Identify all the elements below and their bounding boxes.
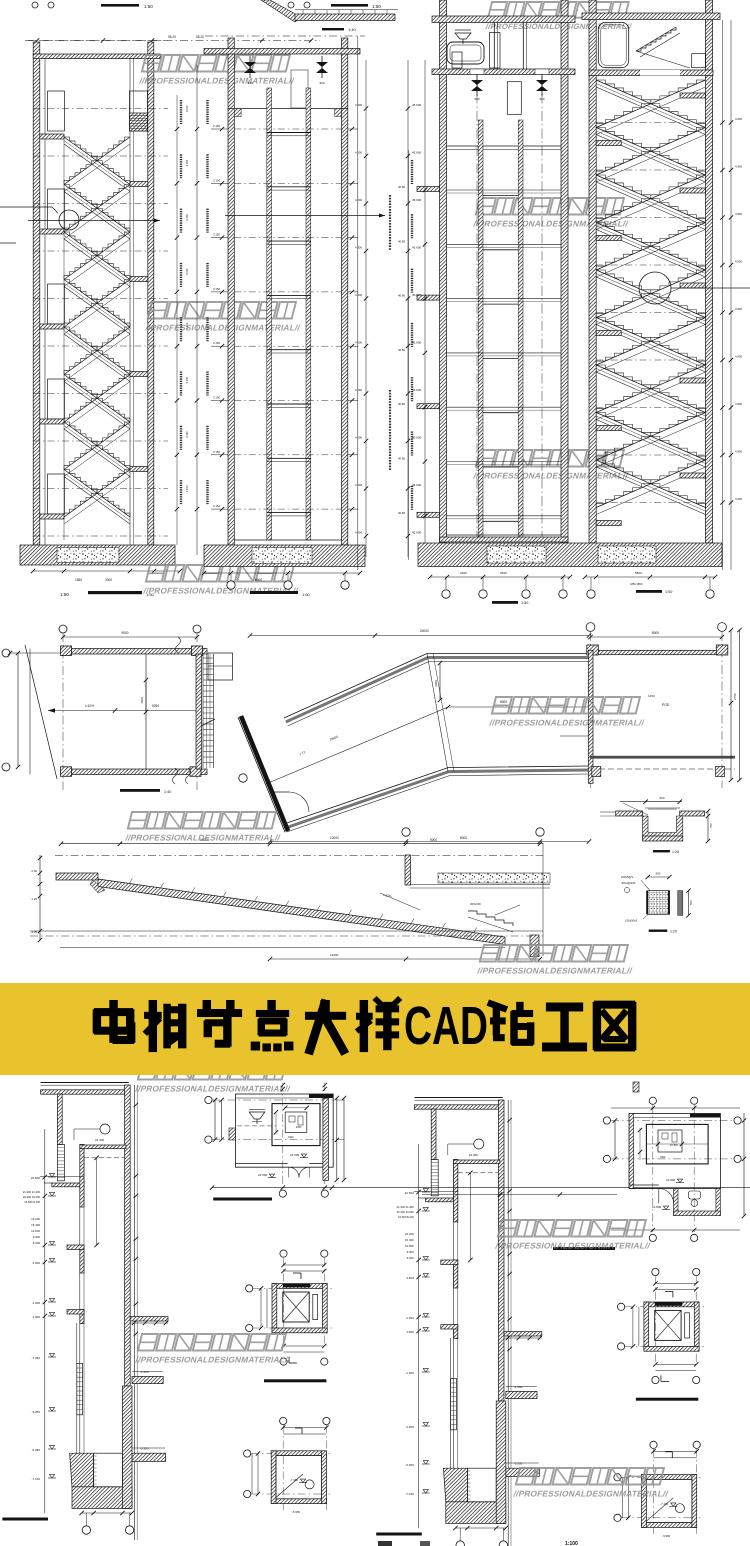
svg-text://PROFESSIONALDESIGNMATERIAL//: //PROFESSIONALDESIGNMATERIAL// (138, 75, 295, 85)
svg-text:6.300: 6.300 (33, 1241, 41, 1245)
svg-text:1:40: 1:40 (164, 790, 171, 794)
svg-text:4.800: 4.800 (735, 212, 742, 216)
svg-text:-5.350: -5.350 (31, 1448, 40, 1452)
svg-text:21.300 21.400: 21.300 21.400 (23, 1190, 41, 1194)
svg-text://PROFESSIONALDESIGNMATERIAL//: //PROFESSIONALDESIGNMATERIAL// (144, 322, 301, 332)
svg-text:4.800: 4.800 (735, 117, 742, 121)
svg-text:45.600: 45.600 (412, 531, 422, 535)
svg-text:D7.830: D7.830 (670, 1144, 678, 1147)
svg-text:1:50: 1:50 (372, 4, 381, 9)
svg-text:550: 550 (656, 872, 661, 876)
svg-text:15.400: 15.400 (31, 1223, 40, 1227)
svg-text:45.600: 45.600 (412, 198, 422, 202)
svg-text:45.600: 45.600 (412, 341, 422, 345)
svg-text:3.150: 3.150 (213, 396, 220, 400)
svg-text:4.800: 4.800 (735, 307, 742, 311)
svg-text:45.600: 45.600 (412, 483, 422, 487)
svg-text:8000: 8000 (460, 836, 467, 840)
svg-text:4.800: 4.800 (735, 260, 742, 264)
svg-text:12.600: 12.600 (31, 1229, 40, 1233)
svg-text:8000: 8000 (652, 631, 659, 635)
svg-text:1:50: 1:50 (521, 601, 528, 605)
svg-text:3.150: 3.150 (213, 178, 220, 182)
svg-text:21.800: 21.800 (652, 1205, 662, 1209)
svg-text:2.300: 2.300 (32, 1301, 40, 1305)
svg-text:900: 900 (247, 81, 252, 85)
svg-text:3.150: 3.150 (185, 376, 189, 383)
svg-text:24.300: 24.300 (469, 1153, 479, 1157)
svg-text:9000: 9000 (121, 631, 128, 635)
svg-text:4.800: 4.800 (735, 450, 742, 454)
svg-text:3600: 3600 (140, 697, 144, 704)
svg-text:4.800: 4.800 (735, 355, 742, 359)
svg-text:1600: 1600 (288, 1136, 294, 1139)
svg-text:-1.450: -1.450 (140, 1370, 149, 1374)
svg-text:4.800: 4.800 (355, 151, 362, 155)
svg-text://PROFESSIONALDESIGNMATERIAL//: //PROFESSIONALDESIGNMATERIAL// (494, 1240, 651, 1250)
svg-text:600: 600 (659, 796, 664, 800)
svg-text://PROFESSIONALDESIGNMATERIAL//: //PROFESSIONALDESIGNMATERIAL// (472, 470, 629, 480)
svg-text:16.600 8.100: 16.600 8.100 (24, 1200, 40, 1204)
svg-text:16.200: 16.200 (405, 1232, 414, 1236)
svg-text:3.150: 3.150 (213, 287, 220, 291)
svg-text:1:50: 1:50 (302, 592, 311, 597)
svg-text:3.150: 3.150 (185, 485, 189, 492)
svg-text:-7.150: -7.150 (660, 1502, 668, 1506)
svg-text:12000: 12000 (330, 953, 339, 957)
svg-text:1.900: 1.900 (406, 1330, 414, 1334)
svg-text:4.800: 4.800 (355, 388, 362, 392)
svg-text:-3.250: -3.250 (31, 1410, 40, 1414)
svg-text:40.80: 40.80 (398, 185, 405, 189)
svg-text:2750: 2750 (733, 693, 737, 700)
svg-text:3.150: 3.150 (213, 504, 220, 508)
svg-text:3.150: 3.150 (185, 105, 189, 112)
svg-text:300x150: 300x150 (470, 902, 481, 906)
svg-text:1600: 1600 (660, 1156, 666, 1159)
svg-text:4.800: 4.800 (355, 246, 362, 250)
svg-text:900: 900 (319, 81, 324, 85)
svg-text:15.400: 15.400 (405, 1238, 414, 1242)
svg-text:4.800: 4.800 (735, 402, 742, 406)
svg-text:16.200: 16.200 (31, 1217, 40, 1221)
svg-text:24.300: 24.300 (95, 1138, 105, 1142)
svg-text:20.200 19.200: 20.200 19.200 (23, 1195, 41, 1199)
svg-text://PROFESSIONALDESIGNMATERIAL//: //PROFESSIONALDESIGNMATERIAL// (134, 1083, 291, 1093)
svg-text:20.200 19.200: 20.200 19.200 (397, 1210, 415, 1214)
svg-text:3.150: 3.150 (185, 159, 189, 166)
svg-text:4.800: 4.800 (355, 103, 362, 107)
svg-text:1:50: 1:50 (144, 4, 153, 9)
svg-text:1:50: 1:50 (60, 592, 69, 597)
svg-text:45.600: 45.600 (412, 246, 422, 250)
svg-text:1:20: 1:20 (672, 850, 679, 854)
svg-text:-5.350: -5.350 (140, 1447, 149, 1451)
svg-text:4.800: 4.800 (355, 436, 362, 440)
svg-text:21.300 21.400: 21.300 21.400 (397, 1205, 415, 1209)
svg-text:45.600: 45.600 (412, 103, 422, 107)
svg-text:3.150: 3.150 (185, 214, 189, 221)
svg-text:2050: 2050 (296, 1126, 302, 1129)
svg-text:3.150: 3.150 (213, 124, 220, 128)
svg-text:6000: 6000 (434, 680, 438, 687)
svg-text://PROFESSIONALDESIGNMATERIAL//: //PROFESSIONALDESIGNMATERIAL// (134, 1354, 291, 1364)
svg-text:L50x50x5: L50x50x5 (625, 919, 638, 923)
svg-text:8000: 8000 (500, 700, 507, 704)
svg-text:-3.250: -3.250 (405, 1425, 414, 1429)
svg-text:12000: 12000 (330, 836, 339, 840)
svg-text:40.80: 40.80 (398, 457, 405, 461)
svg-text:4.800: 4.800 (355, 531, 362, 535)
svg-text:1:100: 1:100 (565, 1541, 578, 1546)
svg-text:5800: 5800 (635, 571, 642, 575)
svg-text:i=10%: i=10% (85, 704, 94, 708)
svg-text:4.800: 4.800 (355, 198, 362, 202)
svg-text://PROFESSIONALDESIGNMATERIAL//: //PROFESSIONALDESIGNMATERIAL// (124, 832, 281, 842)
svg-text:22.500: 22.500 (31, 1176, 41, 1180)
svg-text:40.80: 40.80 (398, 239, 405, 243)
svg-text:22.500: 22.500 (258, 1173, 268, 1177)
svg-text:4.800: 4.800 (735, 165, 742, 169)
svg-text:22.500: 22.500 (290, 1153, 300, 1157)
svg-text:4.800: 4.800 (355, 341, 362, 345)
svg-text:750: 750 (709, 823, 713, 828)
svg-text:-1.450: -1.450 (514, 1385, 523, 1389)
svg-text:4.800: 4.800 (735, 497, 742, 501)
svg-text:24000: 24000 (420, 629, 429, 633)
svg-text:3.150: 3.150 (213, 450, 220, 454)
svg-text:40.80: 40.80 (398, 348, 405, 352)
svg-text:-5.950: -5.950 (662, 1534, 670, 1538)
svg-text://PROFESSIONALDESIGNMATERIAL//: //PROFESSIONALDESIGNMATERIAL// (476, 965, 633, 975)
svg-text:1:40: 1:40 (348, 27, 357, 32)
svg-text:-1.20: -1.20 (31, 897, 38, 901)
svg-text:2.300: 2.300 (406, 1316, 414, 1320)
svg-text:6.300: 6.300 (407, 1256, 415, 1260)
svg-text:1850 1850: 1850 1850 (630, 582, 643, 586)
svg-text:4.600: 4.600 (32, 1261, 40, 1265)
svg-text:45.600: 45.600 (412, 151, 422, 155)
svg-text://PROFESSIONALDESIGNMATERIAL//: //PROFESSIONALDESIGNMATERIAL// (512, 1488, 669, 1498)
svg-text:-5.350: -5.350 (405, 1463, 414, 1467)
svg-text:45.600: 45.600 (412, 388, 422, 392)
svg-text:2400: 2400 (460, 571, 467, 575)
svg-text:-1.350: -1.350 (31, 1356, 40, 1360)
svg-text:9.300: 9.300 (33, 1235, 41, 1239)
svg-text:-7.150: -7.150 (290, 1478, 298, 1482)
svg-text:3.150: 3.150 (213, 341, 220, 345)
svg-text:3300: 3300 (105, 578, 112, 582)
svg-text:22.500: 22.500 (405, 1191, 415, 1195)
svg-text:2600: 2600 (500, 571, 507, 575)
svg-text:3.150: 3.150 (213, 233, 220, 237)
svg-text:900: 900 (474, 97, 479, 101)
svg-text:45.600: 45.600 (412, 436, 422, 440)
svg-text:1.900: 1.900 (32, 1315, 40, 1319)
svg-text:9000: 9000 (430, 838, 437, 842)
svg-text:55.20: 55.20 (168, 35, 176, 39)
svg-text:-60x6@200: -60x6@200 (621, 881, 636, 885)
svg-text://PROFESSIONALDESIGNMATERIAL//: //PROFESSIONALDESIGNMATERIAL// (488, 717, 645, 727)
svg-text:40.80: 40.80 (398, 294, 405, 298)
svg-text:-5.350: -5.350 (514, 1462, 523, 1466)
svg-text:16.600 8.100: 16.600 8.100 (398, 1215, 414, 1219)
svg-text://PROFESSIONALDESIGNMATERIAL//: //PROFESSIONALDESIGNMATERIAL// (485, 22, 633, 31)
svg-text:L50x5@S: L50x5@S (621, 875, 633, 879)
svg-text:POD: POD (662, 703, 670, 707)
svg-text:CAD: CAD (404, 996, 488, 1056)
svg-text:1850: 1850 (75, 578, 82, 582)
svg-text:4.800: 4.800 (355, 483, 362, 487)
svg-text:21.800: 21.800 (666, 1178, 676, 1182)
svg-text:5250: 5250 (152, 704, 159, 708)
svg-text:-1.350: -1.350 (405, 1371, 414, 1375)
svg-text:1:50: 1:50 (665, 590, 672, 594)
svg-text:0.00: 0.00 (32, 869, 38, 873)
svg-text:900: 900 (539, 97, 544, 101)
svg-text:550: 550 (689, 900, 693, 905)
svg-text:-4.95: -4.95 (31, 930, 38, 934)
svg-text:1:20: 1:20 (670, 930, 677, 934)
svg-text:6600: 6600 (255, 578, 262, 582)
svg-text:3.150: 3.150 (185, 268, 189, 275)
svg-text:3.150: 3.150 (185, 431, 189, 438)
svg-text:12.600: 12.600 (405, 1244, 414, 1248)
svg-text:55.20: 55.20 (196, 35, 204, 39)
svg-text:1450: 1450 (648, 694, 655, 698)
svg-text:4.800: 4.800 (355, 293, 362, 297)
svg-text:3.150: 3.150 (185, 322, 189, 329)
svg-text:40.80: 40.80 (398, 402, 405, 406)
svg-text:-7.150: -7.150 (405, 1492, 414, 1496)
svg-text:4.600: 4.600 (406, 1276, 414, 1280)
svg-text:9.300: 9.300 (407, 1250, 415, 1254)
svg-text:-5.950: -5.950 (292, 1510, 300, 1514)
svg-text:40.80: 40.80 (398, 511, 405, 515)
svg-text:-7.150: -7.150 (31, 1477, 40, 1481)
